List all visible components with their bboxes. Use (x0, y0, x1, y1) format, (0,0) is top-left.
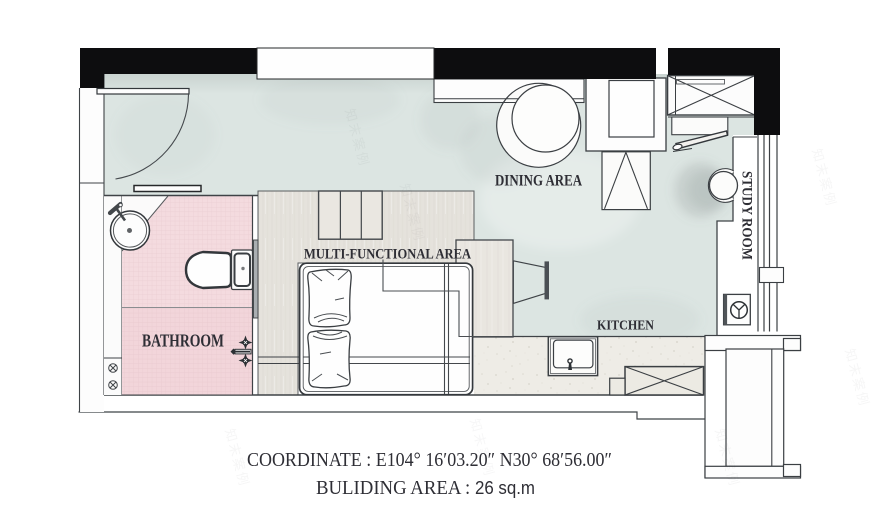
svg-text:COORDINATE : E104° 16′03.20″: COORDINATE : E104° 16′03.20″ N30° 68′56.… (247, 449, 612, 471)
svg-text:STUDY ROOM: STUDY ROOM (739, 171, 755, 260)
svg-text:DINING AREA: DINING AREA (495, 173, 583, 190)
svg-text:BULIDING AREA : 26 sq.m: BULIDING AREA : 26 sq.m (316, 477, 535, 499)
svg-text:MULTI-FUNCTIONAL AREA: MULTI-FUNCTIONAL AREA (304, 247, 471, 263)
svg-text:KITCHEN: KITCHEN (597, 319, 654, 334)
svg-text:BATHROOM: BATHROOM (142, 331, 224, 351)
